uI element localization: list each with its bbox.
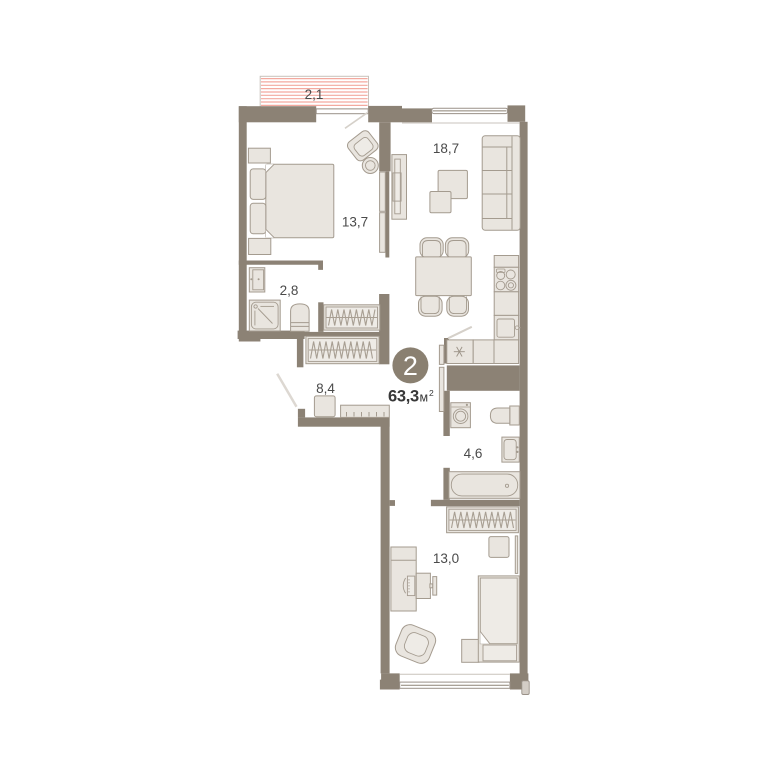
svg-text:13,0: 13,0 bbox=[433, 551, 459, 566]
svg-text:63,3: 63,3 bbox=[388, 388, 419, 406]
svg-text:4,6: 4,6 bbox=[464, 446, 483, 461]
svg-text:м: м bbox=[420, 391, 429, 405]
svg-text:2,1: 2,1 bbox=[305, 87, 324, 102]
svg-text:8,4: 8,4 bbox=[316, 381, 335, 396]
svg-text:13,7: 13,7 bbox=[342, 215, 368, 230]
svg-text:2: 2 bbox=[403, 351, 418, 381]
svg-text:2: 2 bbox=[429, 388, 434, 398]
svg-text:2,8: 2,8 bbox=[280, 283, 299, 298]
svg-text:18,7: 18,7 bbox=[433, 141, 459, 156]
